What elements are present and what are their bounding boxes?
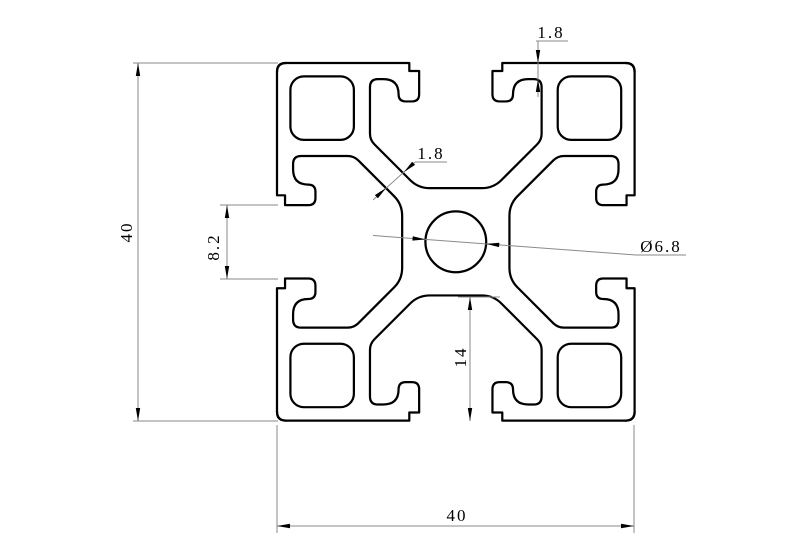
arrowhead	[404, 162, 415, 172]
dimension-lines	[133, 41, 686, 533]
profile-outline-right-segment	[509, 63, 634, 421]
arrowhead	[136, 63, 140, 76]
dim-lip-thickness-label: 1.8	[537, 23, 564, 42]
arrowheads	[136, 50, 634, 528]
arrowhead	[621, 524, 634, 528]
corner-cavity-hole-bottom-left	[290, 344, 353, 407]
arrowhead	[486, 243, 499, 247]
arrowhead	[536, 50, 540, 63]
arrowhead	[375, 188, 386, 198]
profile-outline-top-segment	[277, 63, 635, 188]
arrowhead	[277, 524, 290, 528]
arrowhead	[225, 205, 229, 218]
dim-web-thickness-label: 1.8	[417, 144, 444, 163]
corner-cavity-hole-top-right	[558, 76, 621, 139]
technical-drawing: 40 8.2 1.8 1.8 Ø6.8 14 40	[0, 0, 804, 557]
dim-overall-height-label: 40	[117, 222, 136, 243]
arrowhead	[136, 408, 140, 421]
profile-outline-left-segment	[277, 63, 402, 421]
corner-cavity-hole-top-left	[290, 76, 353, 139]
arrowhead	[412, 236, 425, 240]
dim-center-hole-label: Ø6.8	[640, 237, 682, 256]
dim-overall-width-label: 40	[447, 506, 468, 525]
corner-cavity-hole-bottom-right	[558, 344, 621, 407]
dim-slot-opening-label: 8.2	[204, 233, 223, 260]
dim-slot-depth-label: 14	[451, 347, 470, 368]
arrowhead	[468, 408, 472, 421]
arrowhead	[225, 266, 229, 279]
arrowhead	[468, 297, 472, 310]
leader-line-center-hole	[373, 236, 636, 256]
